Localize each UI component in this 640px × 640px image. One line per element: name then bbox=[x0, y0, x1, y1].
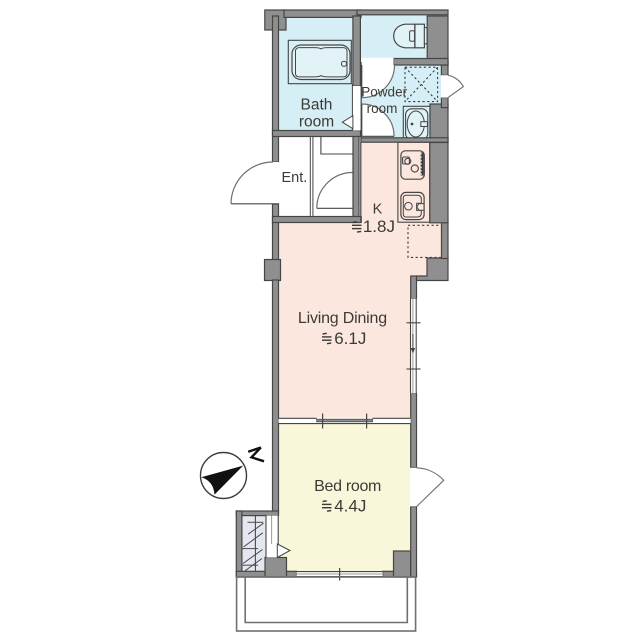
svg-text:4.4J: 4.4J bbox=[334, 496, 366, 515]
svg-text:Bed room: Bed room bbox=[314, 478, 381, 495]
svg-text:Bath: Bath bbox=[301, 97, 333, 114]
svg-text:room: room bbox=[367, 101, 398, 116]
svg-text:1.8J: 1.8J bbox=[363, 217, 395, 236]
svg-text:Ent.: Ent. bbox=[282, 170, 308, 186]
svg-text:6.1J: 6.1J bbox=[334, 329, 366, 348]
svg-text:room: room bbox=[299, 114, 334, 131]
svg-text:K: K bbox=[373, 201, 383, 217]
svg-text:Powder: Powder bbox=[361, 85, 407, 100]
svg-text:Living Dining: Living Dining bbox=[298, 310, 387, 327]
